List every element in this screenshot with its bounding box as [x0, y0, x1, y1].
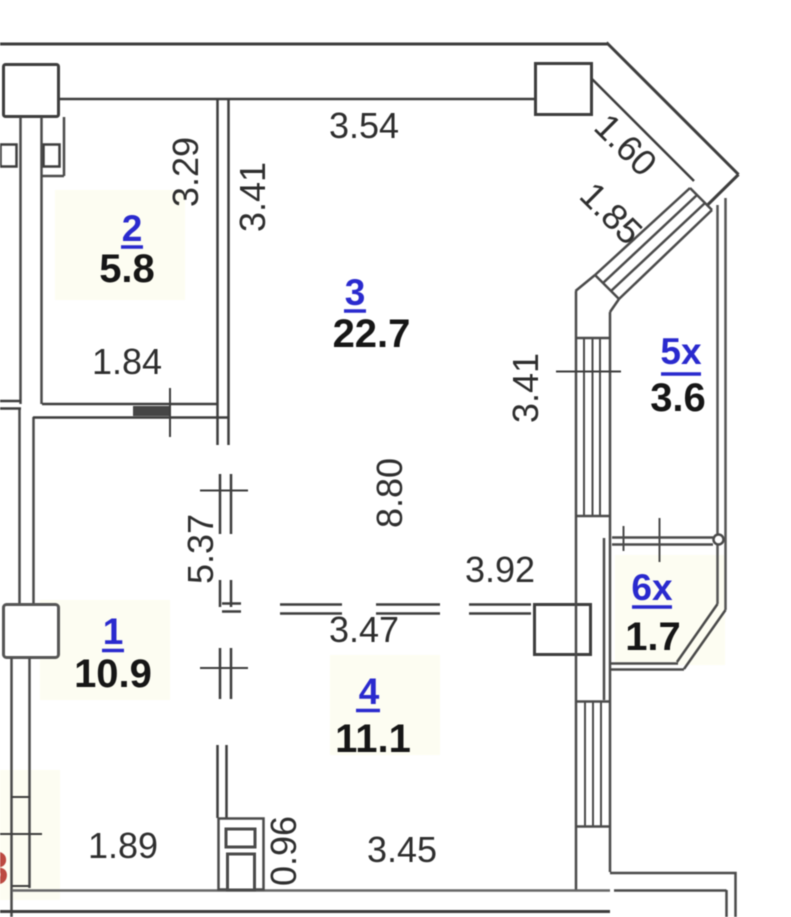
svg-text:1: 1	[103, 611, 124, 652]
svg-text:4: 4	[359, 671, 380, 712]
svg-text:1.84: 1.84	[92, 341, 162, 382]
svg-text:2: 2	[122, 208, 143, 249]
svg-text:3.6: 3.6	[650, 376, 706, 420]
svg-text:8.80: 8.80	[369, 458, 410, 528]
svg-text:5.8: 5.8	[99, 247, 155, 291]
svg-text:6x: 6x	[631, 567, 673, 608]
svg-text:3.47: 3.47	[329, 609, 399, 650]
svg-text:3: 3	[345, 272, 366, 313]
svg-text:1.60: 1.60	[587, 105, 666, 184]
svg-text:3.41: 3.41	[505, 353, 546, 423]
svg-text:10.9: 10.9	[74, 652, 152, 696]
svg-text:22.7: 22.7	[333, 312, 411, 356]
svg-text:1.7: 1.7	[625, 615, 681, 659]
svg-text:3.54: 3.54	[329, 105, 399, 146]
svg-text:3.92: 3.92	[465, 549, 535, 590]
svg-text:3.45: 3.45	[367, 829, 437, 870]
svg-text:11.1: 11.1	[335, 717, 411, 761]
svg-text:0.96: 0.96	[263, 816, 304, 886]
svg-text:3.41: 3.41	[232, 162, 273, 232]
svg-text:1.89: 1.89	[88, 825, 158, 866]
svg-text:5x: 5x	[660, 331, 702, 372]
svg-text:1.85: 1.85	[572, 174, 651, 253]
svg-text:5.37: 5.37	[180, 514, 221, 584]
svg-text:3.29: 3.29	[165, 137, 206, 207]
svg-text:3: 3	[0, 842, 9, 894]
